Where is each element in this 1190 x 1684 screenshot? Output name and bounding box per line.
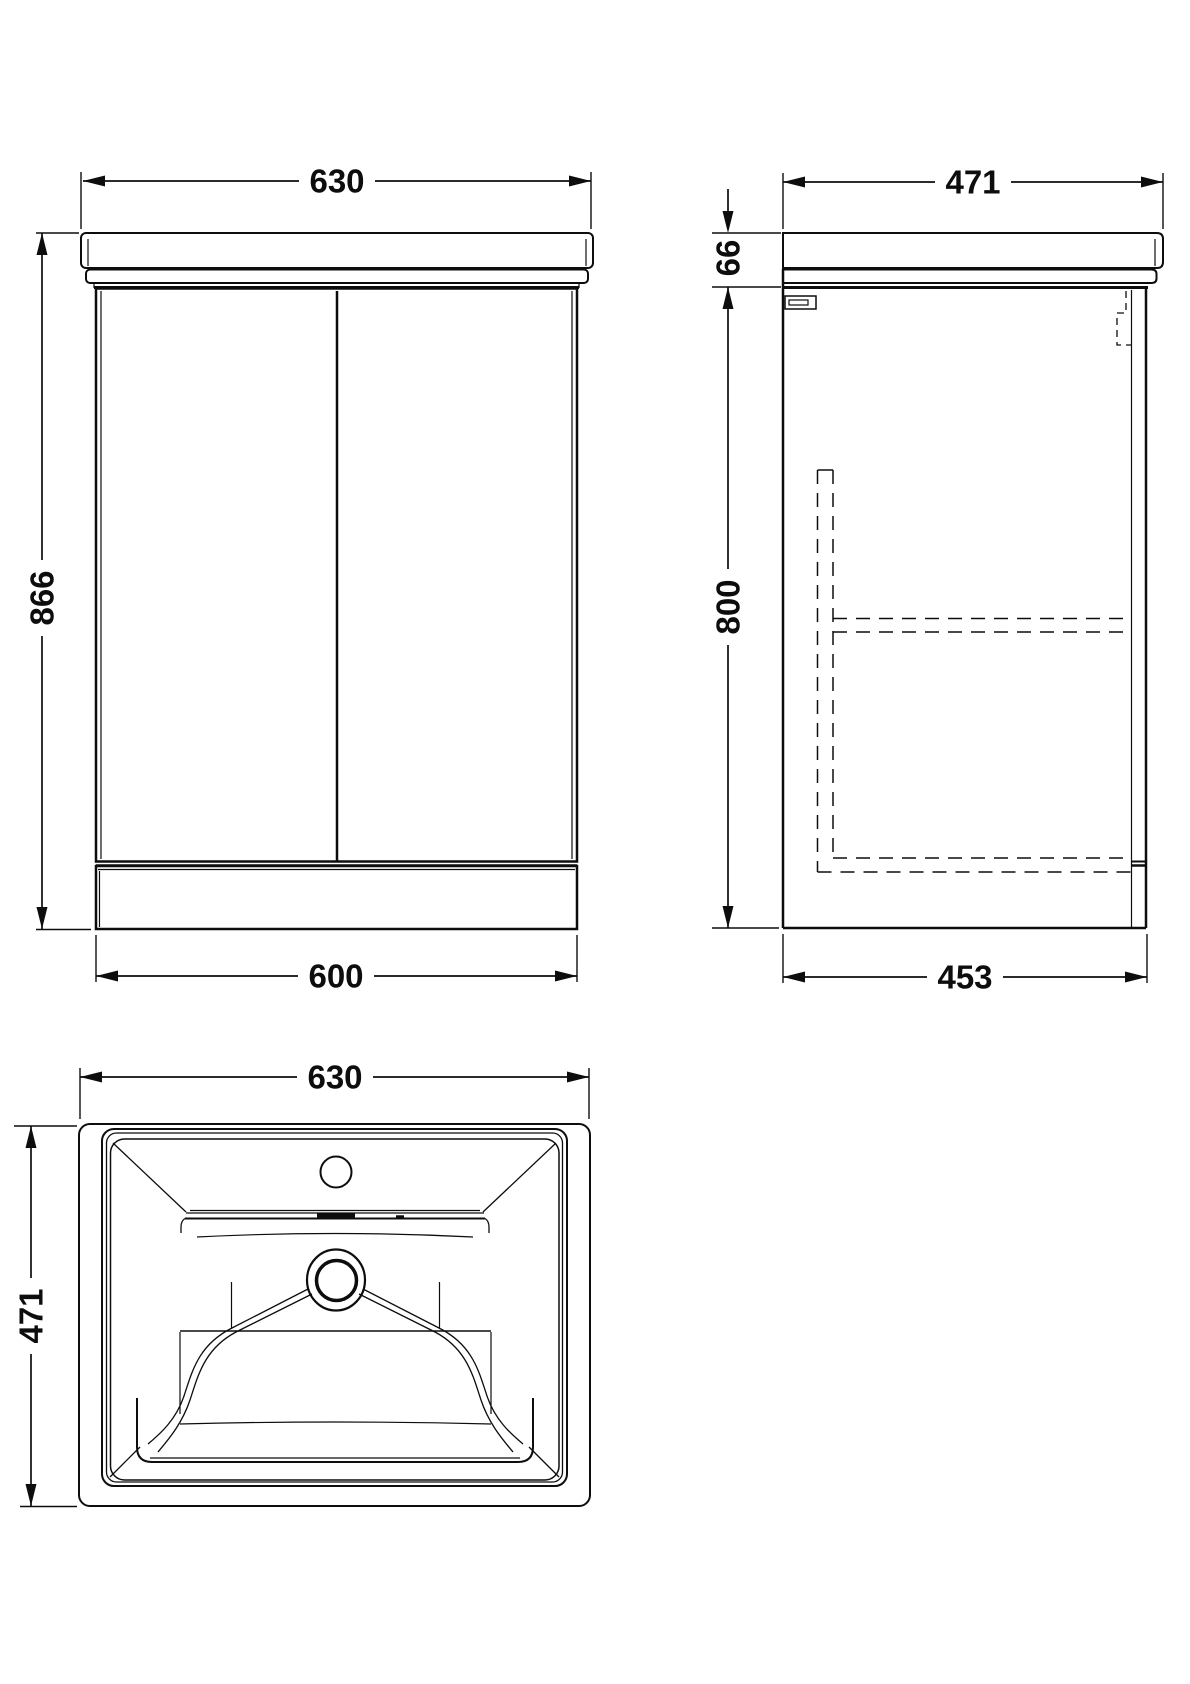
tap-hole [321,1157,352,1188]
side-hidden-internals [818,470,1132,872]
arrow-left-icon [83,176,105,187]
arrow-up-icon [37,233,48,255]
dimension-label-side-depth-bottom: 453 [937,959,992,996]
front-dim-width-bottom: 600 [96,935,577,995]
plan-view: 630 [13,1059,591,1507]
arrow-right-icon [555,971,577,982]
arrow-left-icon [96,971,118,982]
overflow-slot [317,1213,355,1219]
arrow-down-icon [723,211,734,233]
side-cabinet [783,269,1146,928]
arrow-right-icon [569,176,591,187]
dimension-label-front-width-bottom: 600 [308,958,363,995]
side-dim-depth-top: 471 [783,164,1163,230]
dimension-label-side-depth-top: 471 [945,164,1000,201]
dimension-label-plan-width: 630 [307,1059,362,1096]
dimension-label-plan-depth: 471 [13,1288,50,1343]
arrow-right-icon [1125,972,1147,983]
front-view: 630 [24,163,594,995]
dimension-label-side-body-height: 800 [710,579,747,634]
waste-ring-inner [317,1261,357,1301]
arrow-left-icon [783,177,805,188]
dimension-label-side-counter-height: 66 [710,240,747,277]
arrow-left-icon [783,972,805,983]
plan-dim-width: 630 [80,1059,589,1120]
bowl-floor [137,1398,533,1462]
arrow-down-icon [37,907,48,929]
plan-basin [79,1124,590,1506]
technical-drawing-page: 630 [0,0,1190,1684]
front-plinth [96,866,577,929]
hinge-hidden-line [1117,291,1131,345]
arrow-down-icon [723,906,734,928]
arrow-down-icon [26,1484,37,1506]
arrow-right-icon [567,1072,589,1083]
side-countertop [783,233,1163,288]
side-view: 471 [710,164,1164,996]
plan-countertop-outline [79,1124,590,1506]
front-dim-height: 866 [24,233,92,930]
dimension-label-front-height: 866 [24,570,61,625]
dimension-label-front-width-top: 630 [309,163,364,200]
plan-dim-depth: 471 [13,1126,78,1507]
arrow-left-icon [80,1072,102,1083]
arrow-right-icon [1141,177,1163,188]
side-dim-body-height: 800 [710,287,780,928]
fixing-clip [785,296,816,309]
vanity-technical-drawing: 630 [0,0,1190,1684]
front-countertop [81,233,593,288]
side-dim-counter-height: 66 [710,189,782,309]
side-dim-depth-bottom: 453 [783,934,1147,996]
front-cabinet-doors [96,289,577,866]
arrow-up-icon [26,1126,37,1148]
front-dim-width-top: 630 [81,163,591,230]
